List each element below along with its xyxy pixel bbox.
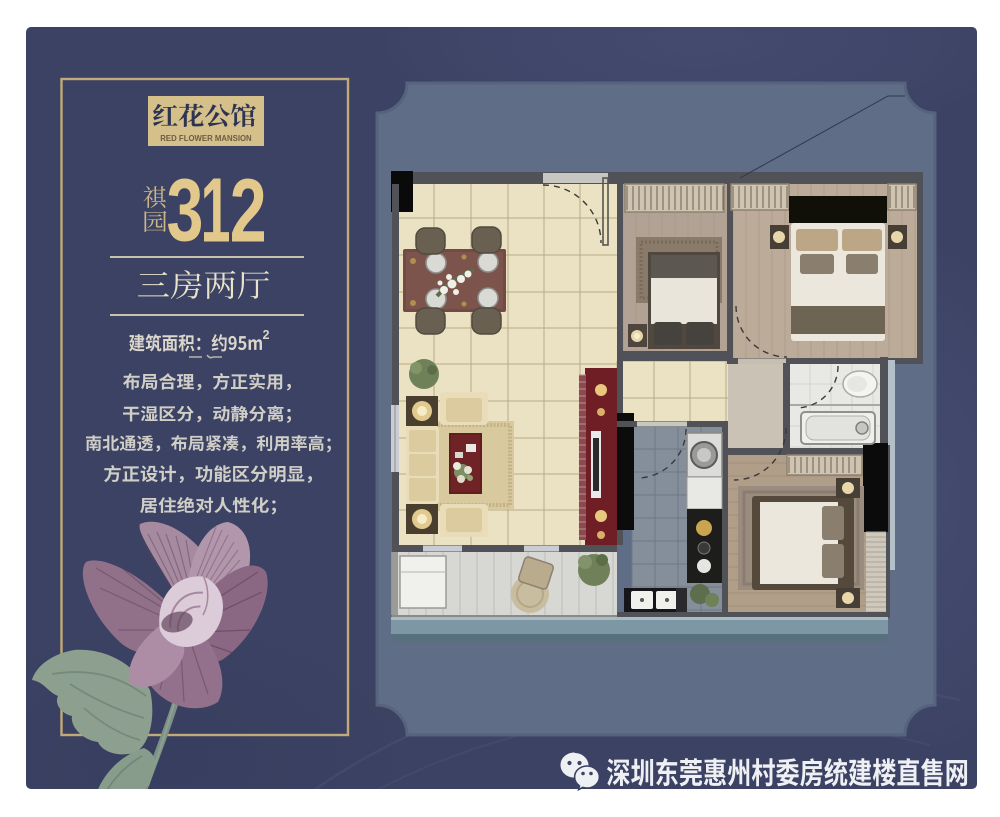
svg-text:RED FLOWER MANSION: RED FLOWER MANSION: [160, 134, 252, 143]
